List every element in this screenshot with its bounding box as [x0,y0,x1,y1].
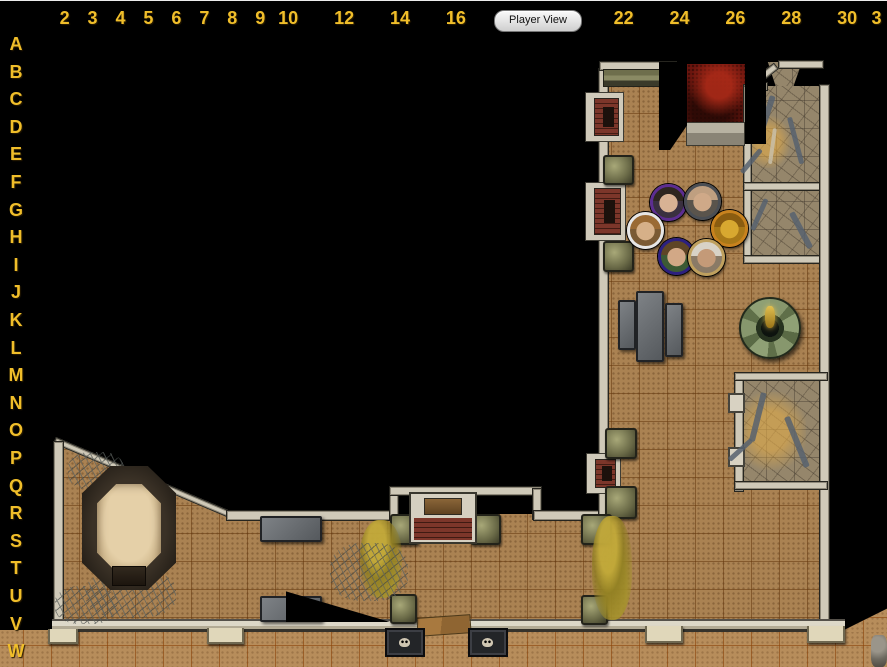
left-ruler-label-F: F [6,172,26,192]
moss-statue-8 [390,594,417,624]
exterior-floor-strip [0,630,887,667]
top-ruler-label-3: 3 [872,8,882,28]
passage-top-cap [778,60,824,69]
map-canvas[interactable] [0,0,887,667]
left-ruler-label-S: S [6,531,26,551]
left-ruler-label-L: L [6,338,26,358]
window-top-edge [0,0,887,1]
rock-pile [871,635,887,667]
left-ruler-label-J: J [6,282,26,302]
rubble-room-3-top-wall [734,372,828,381]
fog-east-of-blood-room [745,60,766,144]
left-ruler-label-D: D [6,117,26,137]
fountain [739,297,801,359]
left-ruler-label-W: W [6,641,26,661]
buttress-4 [807,626,845,643]
top-ruler-label-22: 22 [614,8,634,28]
buttress-3 [645,626,683,643]
rubble-room-3-bottom-wall [734,481,828,490]
left-ruler-label-K: K [6,310,26,330]
stone-slab-4 [260,516,322,542]
left-ruler-label-T: T [6,558,26,578]
left-ruler-label-B: B [6,62,26,82]
left-ruler-label-H: H [6,227,26,247]
left-ruler-label-I: I [6,255,26,275]
top-ruler-label-8: 8 [227,8,237,28]
door-jamb-upper [728,393,745,413]
token-tan-old-man[interactable] [688,239,725,276]
thorn-vines-3 [330,543,408,601]
sand-pit-step [112,566,146,586]
blood-room-floor [687,64,745,126]
left-ruler-label-O: O [6,420,26,440]
stone-slab-3 [665,303,683,357]
brick-fireplace [409,492,477,544]
top-ruler-label-3: 3 [88,8,98,28]
sand-pit-floor [97,484,161,572]
top-ruler-label-6: 6 [171,8,181,28]
left-ruler-label-G: G [6,200,26,220]
top-ruler-label-16: 16 [446,8,466,28]
buttress-1 [48,629,78,644]
top-ruler-label-28: 28 [781,8,801,28]
left-ruler-label-U: U [6,586,26,606]
skull-trapdoor-2 [468,628,508,657]
player-view-button[interactable]: Player View [494,10,582,32]
top-ruler-label-14: 14 [390,8,410,28]
top-ruler-label-5: 5 [143,8,153,28]
app-window: 234567891012141622242628303 ABCDEFGHIJKL… [0,0,887,667]
top-ruler-label-9: 9 [255,8,265,28]
token-white-curly-hair[interactable] [627,212,664,249]
top-ruler-label-7: 7 [199,8,209,28]
left-ruler-label-C: C [6,89,26,109]
left-ruler-label-N: N [6,393,26,413]
moss-statue-3 [605,428,637,459]
left-ruler-label-V: V [6,614,26,634]
buttress-2 [207,628,244,644]
wall-shrine-1 [585,92,624,142]
top-ruler-label-10: 10 [278,8,298,28]
east-main-wall [819,84,830,624]
left-ruler-label-A: A [6,34,26,54]
left-ruler-label-R: R [6,503,26,523]
top-ruler-label-26: 26 [725,8,745,28]
left-ruler-label-E: E [6,144,26,164]
blood-room-steps [686,122,745,146]
stone-slab-1 [618,300,636,350]
wall-shrine-2 [585,182,626,241]
thorn-vines-4 [55,586,117,624]
top-ruler-label-4: 4 [115,8,125,28]
moss-statue-1 [603,155,634,185]
stone-slab-2 [636,291,664,362]
left-ruler-label-P: P [6,448,26,468]
top-ruler-label-12: 12 [334,8,354,28]
skull-trapdoor-1 [385,628,425,657]
gold-vine-2 [592,516,632,620]
left-ruler-label-M: M [6,365,26,385]
exterior-floor-right-slope [840,606,887,632]
rubble-room-divider-wall [743,182,829,191]
top-ruler-label-2: 2 [60,8,70,28]
top-ruler-label-24: 24 [669,8,689,28]
rubble-room-3-left-wall [734,372,744,492]
rubble-room-2-bottom-wall [743,255,829,264]
top-ruler-label-30: 30 [837,8,857,28]
left-ruler-label-Q: Q [6,476,26,496]
moss-statue-2 [603,241,634,272]
